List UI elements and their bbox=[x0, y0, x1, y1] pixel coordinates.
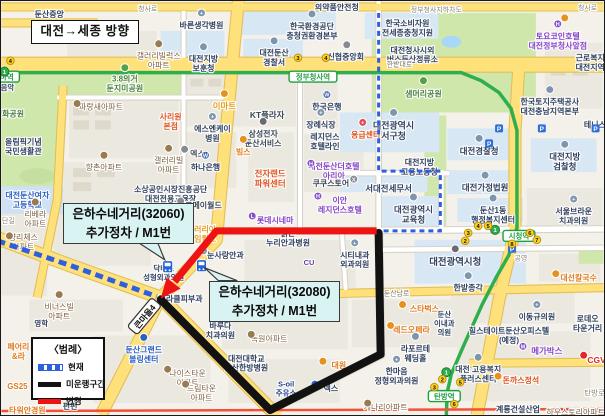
poi-icon bbox=[451, 245, 459, 253]
poi-icon bbox=[270, 37, 278, 45]
parking-icon-letter: P bbox=[497, 126, 502, 133]
poi-icon bbox=[140, 333, 148, 341]
park-feature bbox=[19, 168, 55, 184]
poi-icon-glyph: + bbox=[200, 11, 203, 17]
badge-number: 6 bbox=[528, 231, 531, 237]
map-label: 쿠쿠스토어 bbox=[313, 178, 350, 188]
map-label: 청사로 bbox=[578, 3, 598, 12]
bus-stop-icon[interactable] bbox=[197, 260, 207, 272]
map-label: 한국소비자원전세종충청지원 bbox=[382, 18, 433, 37]
badge-number: 2 bbox=[464, 239, 467, 245]
map-label: 시티내과외과의원 bbox=[340, 250, 370, 269]
map-label: 둔산남로 bbox=[384, 289, 410, 298]
poi-icon bbox=[387, 321, 395, 329]
poi-icon bbox=[259, 117, 267, 125]
poi-icon bbox=[308, 10, 316, 18]
map-label: 3.8의거둔지미공원 bbox=[107, 74, 144, 93]
poi-icon bbox=[364, 399, 372, 407]
poi-icon bbox=[5, 232, 13, 240]
badge-number: 3 bbox=[296, 56, 299, 62]
map-label: 롯데시네마 bbox=[257, 215, 294, 225]
legend-row-current: 현재 bbox=[38, 361, 103, 373]
poi-icon bbox=[475, 134, 483, 142]
legend-heading: 〈범례〉 bbox=[33, 341, 103, 356]
map-label: 한국토지주택공사대전충남지역본부 bbox=[521, 97, 580, 116]
map-label: 탄방로 bbox=[584, 388, 604, 398]
callout-stop-32080: 은하수네거리(32080) 추가정차 / M1번 bbox=[209, 281, 340, 322]
map-label: 향촌아파트 bbox=[86, 162, 123, 172]
callout-stop-32060: 은하수네거리(32060) 추가정차 / M1번 bbox=[63, 203, 194, 244]
poi-icon-glyph: H bbox=[309, 161, 313, 167]
callout-stop-32080-line2: 추가정차 / M1번 bbox=[210, 302, 339, 321]
road bbox=[380, 248, 604, 250]
poi-icon-glyph: + bbox=[361, 121, 364, 127]
map-label: 응급센터 bbox=[351, 129, 380, 139]
legend-row-discontinued: 미운행구간 bbox=[38, 378, 103, 390]
badge-number: 7 bbox=[535, 238, 538, 244]
bus-stop-body bbox=[163, 261, 173, 273]
map-label: 둔산중앙 bbox=[35, 9, 65, 19]
subway-station-name: 정부청사역 bbox=[296, 71, 330, 81]
map-label: 레지던스호텔라인 bbox=[310, 131, 340, 150]
poi-icon bbox=[343, 41, 351, 49]
building bbox=[73, 182, 91, 191]
bus-stop-window bbox=[165, 263, 171, 266]
poi-icon-glyph: + bbox=[535, 303, 538, 309]
map-label: 한밭대로 bbox=[387, 60, 413, 69]
road bbox=[469, 362, 603, 363]
map-label: 메가박스 bbox=[531, 346, 562, 356]
map-label: 평화공원 bbox=[1, 108, 24, 118]
map-label: 공영 bbox=[515, 254, 528, 263]
map-label: 녹원아파트 bbox=[251, 333, 288, 343]
legend-label-changed: 변경 bbox=[66, 395, 82, 407]
park-feature bbox=[441, 36, 461, 48]
poi-icon bbox=[411, 332, 419, 340]
poi-icon bbox=[481, 171, 489, 179]
poi-icon bbox=[181, 145, 189, 153]
poi-icon bbox=[247, 330, 255, 338]
bus-stop-icon[interactable] bbox=[163, 261, 173, 273]
parking-icon-letter: P bbox=[540, 126, 545, 133]
badge-number: 3 bbox=[467, 231, 470, 237]
callout-stop-32060-line1: 은하수네거리(32060) bbox=[64, 205, 193, 224]
callout-stop-32060-line2: 추가정차 / M1번 bbox=[64, 224, 193, 243]
map-label: 비너스빌아파트 bbox=[45, 302, 74, 321]
map-label: 눈사랑안과 bbox=[207, 250, 244, 260]
map-label: 이마트 bbox=[213, 101, 237, 111]
map-label: 레드오페라 bbox=[393, 324, 430, 334]
map-label: 정부청사지하차도 bbox=[411, 5, 463, 14]
building bbox=[73, 120, 89, 129]
map-label: 대전지방보훈청 bbox=[189, 54, 219, 73]
poi-icon bbox=[580, 351, 588, 359]
map-canvas[interactable]: 둔산중앙청사로의약품안전청정부청사지하차도청사로바른생각병원한국환경공단충청권환… bbox=[0, 0, 605, 416]
poi-icon bbox=[100, 151, 108, 159]
map-label: 둔산그랜드볼링센터 bbox=[125, 344, 162, 363]
poi-icon-glyph: W bbox=[203, 153, 209, 159]
poi-icon-glyph: X bbox=[352, 177, 356, 183]
map-label: 한밭종각 bbox=[454, 283, 484, 293]
map-label: 올림픽기념국민생활관 bbox=[5, 136, 42, 155]
building bbox=[191, 79, 204, 87]
poi-icon bbox=[155, 40, 163, 48]
map-label: 신협중앙회 bbox=[327, 52, 364, 62]
poi-icon bbox=[319, 357, 327, 365]
poi-icon bbox=[73, 100, 81, 108]
map-label: 갤러리빌아파트 bbox=[154, 155, 183, 174]
building bbox=[95, 120, 111, 129]
map-label: 대전경찰청 bbox=[460, 146, 499, 156]
poi-icon bbox=[419, 77, 427, 85]
map-label: 계룡건설산업 bbox=[496, 404, 540, 414]
map-label: 대전지방검찰청 bbox=[549, 152, 580, 172]
bus-stop-wheel bbox=[202, 268, 204, 270]
bus-stop-wheel bbox=[165, 269, 167, 271]
poi-icon bbox=[464, 272, 472, 280]
map-label: GS25 bbox=[7, 382, 28, 391]
map-label: 삼성전자둔산서비스 bbox=[245, 128, 282, 147]
bus-stop-wheel bbox=[199, 268, 201, 270]
badge-number: 6 bbox=[453, 402, 456, 408]
poi-icon-glyph: + bbox=[353, 241, 356, 247]
map-label: 바른생각병원 bbox=[180, 20, 224, 30]
poi-icon bbox=[31, 198, 39, 206]
map-label: 빔스 bbox=[236, 146, 251, 156]
poi-icon bbox=[561, 140, 569, 148]
map-label: 샘머리공원 bbox=[405, 89, 442, 99]
map-label: 의약품안전청 bbox=[315, 2, 359, 12]
map-label: 드림타운아파트 bbox=[187, 383, 216, 402]
poi-icon bbox=[474, 353, 482, 361]
poi-icon-glyph: + bbox=[319, 111, 322, 117]
poi-icon bbox=[390, 108, 398, 116]
map-label: 이동규의원 bbox=[519, 311, 556, 321]
map-label: 한국은행 bbox=[312, 101, 341, 111]
poi-icon bbox=[409, 193, 417, 201]
poi-icon-glyph: H bbox=[316, 194, 320, 200]
poi-icon bbox=[552, 270, 560, 278]
map-label: 근로복지공단대전지역본부 bbox=[576, 53, 604, 72]
poi-icon bbox=[55, 291, 63, 299]
map-label: 단길 bbox=[2, 216, 15, 225]
legend-swatch-discontinued bbox=[38, 382, 61, 387]
legend: 〈범례〉 현재 미운행구간 변경 bbox=[31, 337, 105, 400]
building bbox=[208, 79, 221, 87]
map-label: 영학 bbox=[34, 318, 48, 328]
badge-number: 3 bbox=[433, 385, 436, 391]
map-label: 장례식장 bbox=[306, 119, 336, 129]
poi-icon-glyph: M bbox=[521, 345, 526, 351]
map-label: 스타벅스 bbox=[410, 304, 440, 314]
map-label: 바루다치과의원 bbox=[206, 320, 235, 339]
map-label: 대전가정법원 bbox=[462, 183, 509, 193]
poi-icon-glyph: + bbox=[211, 115, 214, 121]
map-label: 대선칼국수 bbox=[560, 273, 597, 283]
poi-icon bbox=[199, 43, 207, 51]
poi-icon bbox=[165, 144, 173, 152]
poi-icon bbox=[239, 135, 247, 143]
poi-icon bbox=[494, 372, 502, 380]
map-label: 리베라아파트 bbox=[24, 210, 47, 228]
direction-title-text: 대전→세종 방향 bbox=[41, 24, 130, 38]
poi-icon bbox=[121, 64, 129, 72]
map-label: 대전광역시청 bbox=[429, 256, 481, 268]
map-label: 음악 bbox=[1, 82, 14, 92]
bus-stop-window bbox=[199, 262, 205, 265]
poi-icon-glyph: H bbox=[556, 22, 560, 28]
map-label: 대전둔산경찰서 bbox=[259, 48, 289, 67]
map-label: 전자랜드파워센터 bbox=[255, 169, 286, 189]
direction-title: 대전→세종 방향 bbox=[31, 20, 139, 44]
map-label: CU bbox=[304, 258, 315, 267]
poi-icon-glyph: + bbox=[572, 197, 575, 203]
map-label: 청사로 bbox=[138, 4, 158, 13]
map-label: KT플라자 bbox=[250, 110, 285, 120]
map-label: 서울브라운치과의원 bbox=[555, 206, 592, 225]
poi-icon-glyph: + bbox=[395, 357, 398, 363]
map-label: 대전지방고용노동청 bbox=[401, 157, 438, 176]
poi-icon bbox=[164, 365, 172, 373]
legend-row-changed: 변경 bbox=[38, 395, 103, 407]
subway-station-name: 탄방역 bbox=[434, 391, 455, 401]
poi-icon bbox=[561, 14, 569, 22]
map-label: 서대전세무서 bbox=[365, 184, 412, 194]
bus-stop-wheel bbox=[169, 269, 171, 271]
map-label: 라포르테웨딩홀 bbox=[401, 343, 430, 362]
map-label: 로데오타운거리 bbox=[573, 313, 602, 332]
poi-icon bbox=[220, 90, 228, 98]
legend-swatch-current bbox=[38, 364, 63, 371]
map-label: 하우스토리아파트 bbox=[546, 407, 604, 415]
callout-stop-32080-line1: 은하수네거리(32080) bbox=[210, 283, 339, 302]
map-label: 파랑새아파트 bbox=[79, 101, 123, 111]
poi-icon bbox=[489, 194, 497, 202]
poi-icon bbox=[399, 301, 407, 309]
map-label: 하나은행 bbox=[191, 162, 220, 172]
legend-label-current: 현재 bbox=[68, 361, 84, 373]
parking-icon-letter: P bbox=[487, 141, 492, 148]
map-label: 돈까스정석 bbox=[503, 375, 540, 385]
parking-icon-letter: P bbox=[593, 126, 598, 133]
badge-number: 2 bbox=[441, 377, 444, 383]
map-label: 한국환경공단충청권환경본부 bbox=[286, 21, 338, 40]
legend-label-discontinued: 미운행구간 bbox=[66, 378, 105, 390]
bus-stop-body bbox=[197, 260, 207, 272]
poi-icon-glyph: W bbox=[324, 93, 330, 99]
poi-icon bbox=[182, 380, 190, 388]
map-label: 토요코인호텔대전정부청사앞점 bbox=[528, 31, 587, 50]
map-label: CGV bbox=[587, 355, 604, 365]
poi-icon bbox=[546, 86, 554, 94]
legend-swatch-changed bbox=[38, 399, 61, 404]
